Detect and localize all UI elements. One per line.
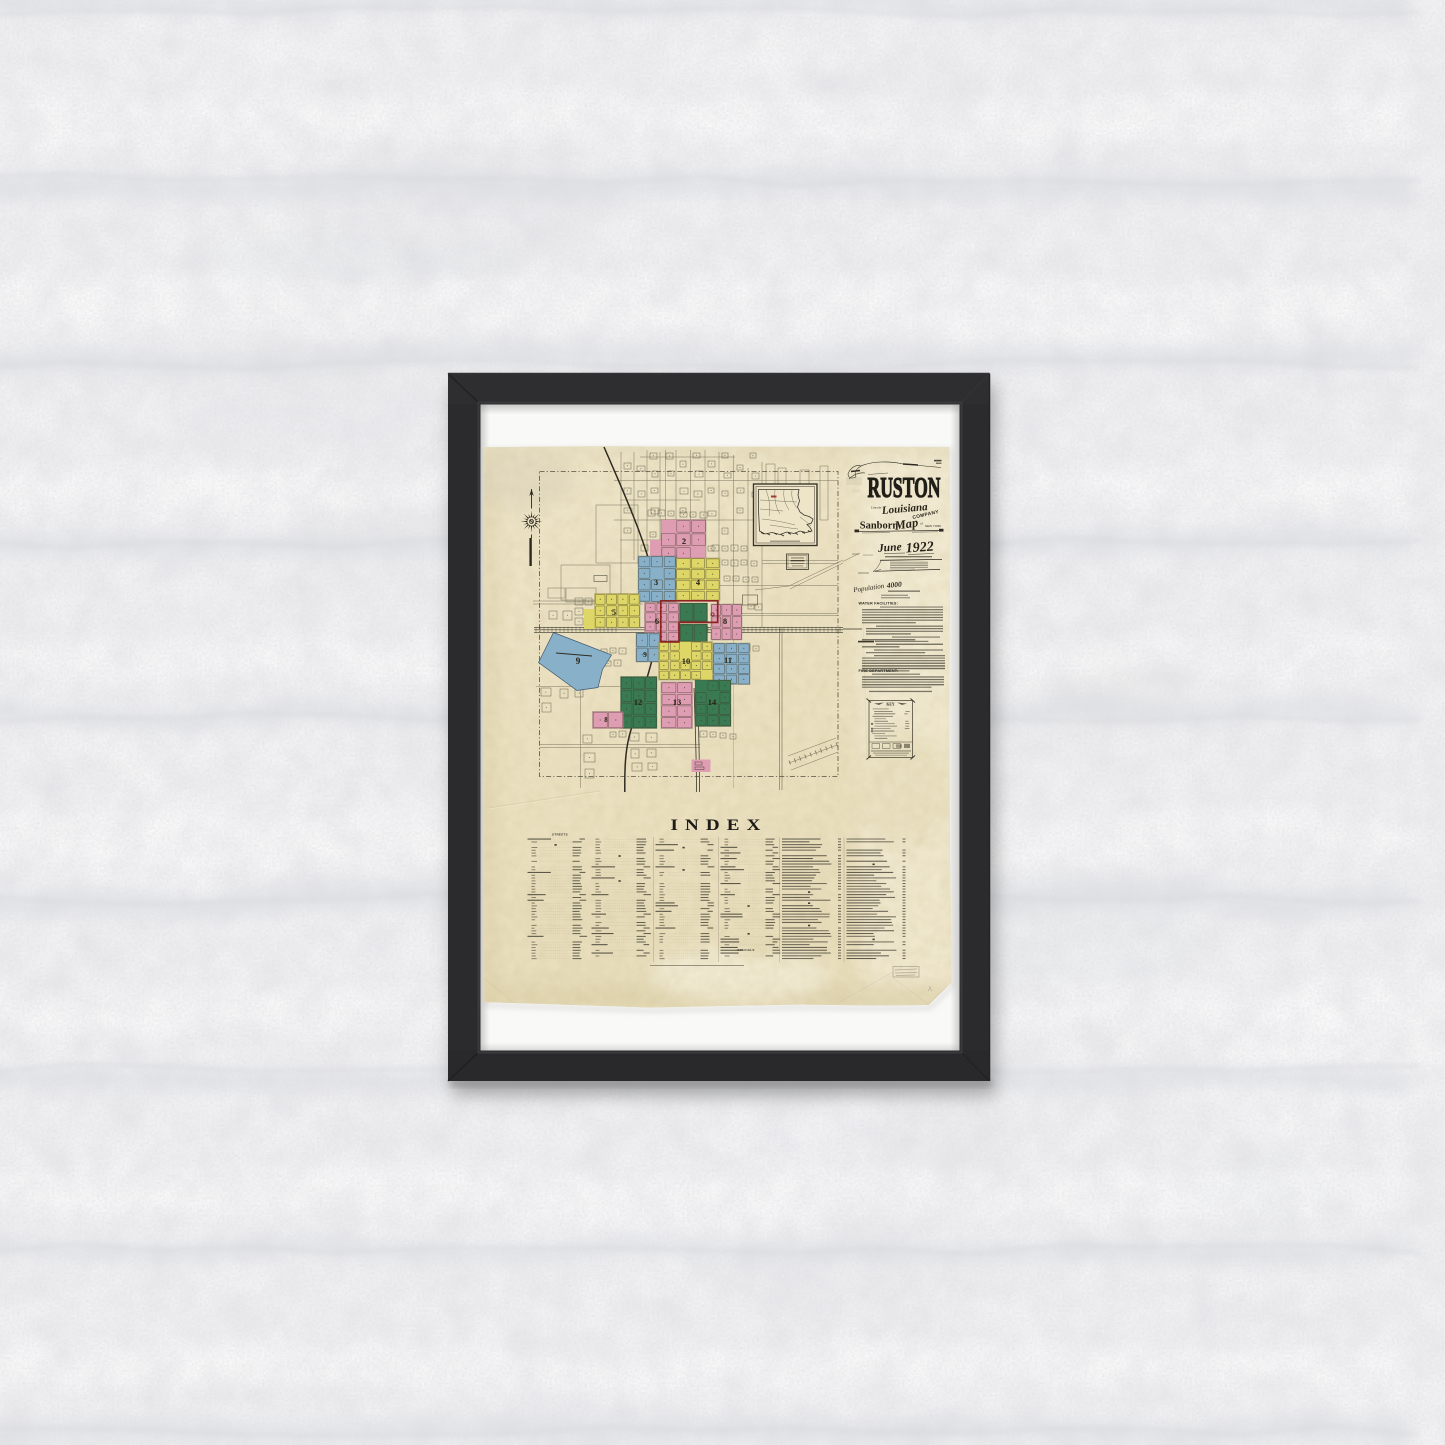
svg-text:FIRE DEPARTMENT:: FIRE DEPARTMENT:	[859, 669, 899, 673]
svg-text:2: 2	[682, 536, 686, 546]
svg-text:6: 6	[655, 616, 659, 626]
svg-text:11: 11	[724, 655, 732, 665]
svg-text:NEW YORK: NEW YORK	[925, 524, 941, 528]
svg-text:June: June	[877, 541, 902, 555]
svg-text:8: 8	[723, 616, 727, 626]
svg-text:N: N	[530, 520, 534, 526]
svg-text:10: 10	[682, 656, 691, 666]
svg-text:8: 8	[604, 716, 608, 724]
svg-text:RUSTON: RUSTON	[868, 473, 941, 504]
svg-text:Lincoln: Lincoln	[870, 506, 882, 510]
svg-text:12: 12	[634, 697, 643, 707]
svg-text:14: 14	[708, 697, 717, 707]
svg-text:KEY: KEY	[886, 703, 894, 707]
svg-text:9: 9	[643, 650, 647, 659]
svg-text:9: 9	[576, 656, 581, 666]
svg-text:STREETS: STREETS	[552, 833, 568, 837]
svg-text:4000: 4000	[885, 579, 902, 590]
svg-text:13: 13	[673, 697, 682, 707]
svg-text:3: 3	[654, 577, 658, 587]
svg-text:Sanborn: Sanborn	[860, 521, 899, 532]
svg-text:INDEX: INDEX	[671, 817, 768, 834]
svg-text:WATER FACILITIES:: WATER FACILITIES:	[859, 601, 899, 605]
svg-text:5: 5	[612, 607, 616, 617]
